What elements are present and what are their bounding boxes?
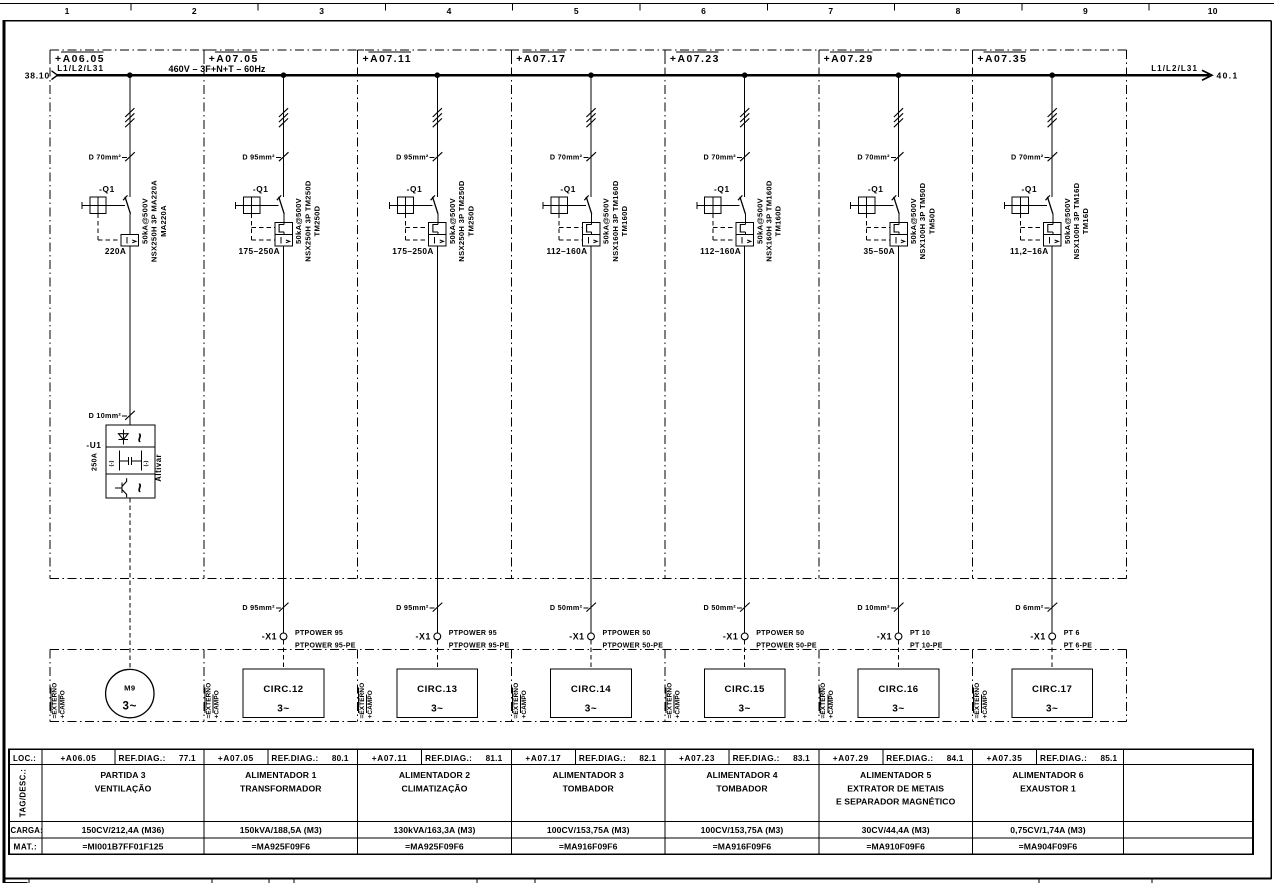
- svg-text:=MI001B7FF01F125: =MI001B7FF01F125: [82, 842, 163, 852]
- svg-text:3~: 3~: [122, 701, 137, 713]
- svg-text:+CAMPO: +CAMPO: [367, 690, 374, 718]
- svg-text:3~: 3~: [277, 704, 289, 715]
- svg-text:-X1: -X1: [416, 632, 432, 642]
- svg-text:+A07.17: +A07.17: [525, 754, 561, 763]
- svg-text:50kA@500V: 50kA@500V: [448, 197, 457, 244]
- svg-text:0,75CV/1,74A (M3): 0,75CV/1,74A (M3): [1010, 825, 1085, 835]
- svg-text:-X1: -X1: [1030, 632, 1046, 642]
- svg-text:82.1: 82.1: [639, 754, 656, 763]
- svg-text:-Q1: -Q1: [99, 184, 115, 194]
- svg-text:REF.DIAG.:: REF.DIAG.:: [579, 754, 626, 763]
- svg-text:=EXTERNO: =EXTERNO: [820, 683, 827, 719]
- svg-text:M9: M9: [124, 683, 135, 692]
- svg-text:+A07.35: +A07.35: [977, 54, 1027, 65]
- svg-text:D 95mm²: D 95mm²: [396, 153, 429, 162]
- svg-text:PTPOWER 50-PE: PTPOWER 50-PE: [603, 643, 664, 650]
- svg-text:D 95mm²: D 95mm²: [396, 603, 429, 612]
- svg-text:=MA916F09F6: =MA916F09F6: [559, 842, 618, 852]
- svg-text:=EXTERNO: =EXTERNO: [359, 683, 366, 719]
- svg-text:-X1: -X1: [262, 632, 278, 642]
- svg-text:3: 3: [319, 6, 324, 16]
- svg-text:PT 6-PE: PT 6-PE: [1064, 643, 1093, 650]
- svg-text:Altivar: Altivar: [154, 454, 163, 482]
- svg-text:D 70mm²: D 70mm²: [704, 153, 737, 162]
- svg-text:3~: 3~: [738, 704, 750, 715]
- svg-text:=MA904F09F6: =MA904F09F6: [1019, 842, 1078, 852]
- svg-text:REF.DIAG.:: REF.DIAG.:: [886, 754, 933, 763]
- svg-text:CIRC.16: CIRC.16: [878, 684, 918, 695]
- svg-text:TOMBADOR: TOMBADOR: [563, 783, 615, 793]
- svg-text:8: 8: [956, 6, 961, 16]
- svg-text:=MA916F09F6: =MA916F09F6: [713, 842, 772, 852]
- svg-text:PARTIDA 3: PARTIDA 3: [100, 770, 145, 780]
- svg-text:D 70mm²: D 70mm²: [89, 153, 122, 162]
- svg-text:-U1: -U1: [86, 440, 101, 450]
- svg-text:TAG/DESC.:: TAG/DESC.:: [19, 769, 28, 817]
- svg-text:PTPOWER 50: PTPOWER 50: [756, 630, 804, 637]
- svg-text:=MA910F09F6: =MA910F09F6: [866, 842, 925, 852]
- svg-text:PTPOWER 95-PE: PTPOWER 95-PE: [449, 643, 510, 650]
- svg-text:REF.DIAG.:: REF.DIAG.:: [119, 754, 166, 763]
- svg-text:+A07.29: +A07.29: [824, 54, 874, 65]
- svg-text:EXTRATOR DE METAIS: EXTRATOR DE METAIS: [847, 783, 944, 793]
- svg-text:VENTILAÇÃO: VENTILAÇÃO: [95, 783, 152, 793]
- svg-text:83.1: 83.1: [793, 754, 810, 763]
- svg-text:3~: 3~: [431, 704, 443, 715]
- svg-text:PTPOWER 95: PTPOWER 95: [295, 630, 343, 637]
- svg-text:EXAUSTOR 1: EXAUSTOR 1: [1020, 783, 1076, 793]
- svg-text:REF.DIAG.:: REF.DIAG.:: [271, 754, 318, 763]
- svg-text:3~: 3~: [585, 704, 597, 715]
- svg-text:TM50D: TM50D: [928, 208, 937, 235]
- svg-text:40.1: 40.1: [1217, 70, 1239, 80]
- svg-text:PTPOWER 50-PE: PTPOWER 50-PE: [756, 643, 817, 650]
- svg-text:NSX160H 3P TM160D: NSX160H 3P TM160D: [765, 180, 774, 262]
- svg-text:=EXTERNO: =EXTERNO: [52, 683, 59, 719]
- svg-text:112–160A: 112–160A: [546, 246, 587, 256]
- svg-text:80.1: 80.1: [332, 754, 349, 763]
- svg-text:150kVA/188,5A (M3): 150kVA/188,5A (M3): [240, 825, 322, 835]
- svg-text:+CAMPO: +CAMPO: [60, 690, 67, 718]
- svg-text:E SEPARADOR MAGNÉTICO: E SEPARADOR MAGNÉTICO: [836, 797, 956, 807]
- svg-text:TM250D: TM250D: [466, 205, 475, 236]
- svg-text:85.1: 85.1: [1101, 754, 1118, 763]
- svg-text:175–250A: 175–250A: [392, 246, 434, 256]
- svg-text:130kVA/163,3A (M3): 130kVA/163,3A (M3): [393, 825, 475, 835]
- svg-text:-X1: -X1: [569, 632, 585, 642]
- svg-text:~: ~: [130, 483, 149, 493]
- svg-text:NSX100H 3P TM16D: NSX100H 3P TM16D: [1072, 182, 1081, 259]
- svg-text:1: 1: [65, 6, 70, 16]
- svg-text:REF.DIAG.:: REF.DIAG.:: [425, 754, 472, 763]
- svg-text:+A07.11: +A07.11: [372, 754, 408, 763]
- svg-text:ALIMENTADOR 6: ALIMENTADOR 6: [1012, 770, 1083, 780]
- svg-text:~: ~: [130, 433, 149, 443]
- svg-text:REF.DIAG.:: REF.DIAG.:: [1040, 754, 1087, 763]
- svg-text:+CAMPO: +CAMPO: [675, 690, 682, 718]
- svg-text:3~: 3~: [892, 704, 904, 715]
- svg-text:NSX160H 3P TM160D: NSX160H 3P TM160D: [611, 180, 620, 262]
- svg-text:50kA@500V: 50kA@500V: [909, 197, 918, 244]
- svg-text:MA220A: MA220A: [159, 205, 168, 237]
- svg-text:TM160D: TM160D: [620, 205, 629, 236]
- svg-text:ALIMENTADOR 5: ALIMENTADOR 5: [860, 770, 931, 780]
- svg-text:ALIMENTADOR 3: ALIMENTADOR 3: [553, 770, 624, 780]
- svg-text:CIRC.12: CIRC.12: [263, 684, 303, 695]
- svg-text:4: 4: [447, 6, 452, 16]
- svg-text:+A07.17: +A07.17: [516, 54, 566, 65]
- svg-text:REF.DIAG.:: REF.DIAG.:: [733, 754, 780, 763]
- svg-text:-X1: -X1: [723, 632, 739, 642]
- svg-text:2: 2: [192, 6, 197, 16]
- svg-text:D 10mm²: D 10mm²: [89, 411, 122, 420]
- svg-text:112–160A: 112–160A: [700, 246, 741, 256]
- svg-text:D 10mm²: D 10mm²: [857, 603, 890, 612]
- svg-text:CARGA:: CARGA:: [11, 826, 43, 835]
- svg-text:PTPOWER 50: PTPOWER 50: [603, 630, 651, 637]
- svg-text:TM250D: TM250D: [313, 205, 322, 236]
- svg-text:+A07.05: +A07.05: [218, 754, 254, 763]
- svg-text:+A07.11: +A07.11: [363, 54, 413, 65]
- svg-text:+CAMPO: +CAMPO: [213, 690, 220, 718]
- svg-text:PT 10-PE: PT 10-PE: [910, 643, 943, 650]
- svg-text:PT 10: PT 10: [910, 630, 930, 637]
- svg-text:(-): (-): [109, 460, 115, 466]
- svg-text:CIRC.15: CIRC.15: [725, 684, 765, 695]
- svg-text:D 95mm²: D 95mm²: [242, 153, 275, 162]
- svg-text:175–250A: 175–250A: [239, 246, 281, 256]
- svg-text:-Q1: -Q1: [560, 184, 576, 194]
- svg-text:+A07.35: +A07.35: [986, 754, 1022, 763]
- svg-text:=EXTERNO: =EXTERNO: [974, 683, 981, 719]
- svg-text:+A07.05: +A07.05: [209, 54, 259, 65]
- svg-text:-Q1: -Q1: [868, 184, 884, 194]
- svg-text:50kA@500V: 50kA@500V: [602, 197, 611, 244]
- svg-text:PTPOWER 95: PTPOWER 95: [449, 630, 497, 637]
- svg-text:50kA@500V: 50kA@500V: [755, 197, 764, 244]
- svg-text:150CV/212,4A (M36): 150CV/212,4A (M36): [82, 825, 165, 835]
- svg-text:-Q1: -Q1: [1022, 184, 1038, 194]
- svg-text:=EXTERNO: =EXTERNO: [205, 683, 212, 719]
- svg-text:L1/L2/L31: L1/L2/L31: [1151, 64, 1198, 73]
- svg-text:=MA925F09F6: =MA925F09F6: [251, 842, 310, 852]
- svg-text:TM16D: TM16D: [1081, 208, 1090, 235]
- svg-text:50kA@500V: 50kA@500V: [140, 197, 149, 244]
- svg-text:ALIMENTADOR 2: ALIMENTADOR 2: [399, 770, 470, 780]
- svg-text:D 6mm²: D 6mm²: [1015, 603, 1043, 612]
- svg-text:PTPOWER 95-PE: PTPOWER 95-PE: [295, 643, 356, 650]
- svg-text:50kA@500V: 50kA@500V: [294, 197, 303, 244]
- svg-text:TM160D: TM160D: [774, 205, 783, 236]
- svg-text:50kA@500V: 50kA@500V: [1063, 197, 1072, 244]
- svg-text:D 50mm²: D 50mm²: [550, 603, 583, 612]
- svg-text:CLIMATIZAÇÃO: CLIMATIZAÇÃO: [402, 783, 468, 793]
- svg-text:NSX250H 3P MA220A: NSX250H 3P MA220A: [150, 180, 159, 262]
- svg-text:7: 7: [828, 6, 833, 16]
- svg-text:6: 6: [701, 6, 706, 16]
- svg-text:9: 9: [1083, 6, 1088, 16]
- svg-text:L1/L2/L31: L1/L2/L31: [57, 64, 104, 73]
- svg-text:CIRC.13: CIRC.13: [417, 684, 457, 695]
- svg-text:+CAMPO: +CAMPO: [521, 690, 528, 718]
- svg-text:-Q1: -Q1: [407, 184, 423, 194]
- svg-text:=MA925F09F6: =MA925F09F6: [405, 842, 464, 852]
- svg-text:NSX250H 3P TM250D: NSX250H 3P TM250D: [303, 180, 312, 262]
- svg-text:+A07.29: +A07.29: [833, 754, 869, 763]
- svg-text:+A07.23: +A07.23: [679, 754, 715, 763]
- svg-text:(-): (-): [143, 460, 149, 466]
- svg-text:35–50A: 35–50A: [864, 246, 895, 256]
- svg-text:11,2–16A: 11,2–16A: [1010, 246, 1049, 256]
- svg-text:+CAMPO: +CAMPO: [828, 690, 835, 718]
- svg-text:TOMBADOR: TOMBADOR: [716, 783, 768, 793]
- svg-text:220A: 220A: [105, 246, 126, 256]
- svg-text:TRANSFORMADOR: TRANSFORMADOR: [240, 783, 322, 793]
- svg-text:=EXTERNO: =EXTERNO: [513, 683, 520, 719]
- svg-text:38.10: 38.10: [25, 71, 50, 81]
- svg-text:+A06.05: +A06.05: [60, 754, 96, 763]
- svg-text:84.1: 84.1: [947, 754, 964, 763]
- svg-text:D 70mm²: D 70mm²: [857, 153, 890, 162]
- svg-text:D 70mm²: D 70mm²: [550, 153, 583, 162]
- svg-text:10: 10: [1208, 6, 1218, 16]
- svg-text:D 95mm²: D 95mm²: [242, 603, 275, 612]
- svg-text:-X1: -X1: [877, 632, 893, 642]
- svg-text:ALIMENTADOR 1: ALIMENTADOR 1: [245, 770, 316, 780]
- svg-text:100CV/153,75A (M3): 100CV/153,75A (M3): [701, 825, 784, 835]
- svg-text:+A07.23: +A07.23: [670, 54, 720, 65]
- svg-text:MAT.:: MAT.:: [14, 843, 38, 852]
- svg-text:460V – 3F+N+T – 60Hz: 460V – 3F+N+T – 60Hz: [168, 64, 265, 74]
- svg-text:-Q1: -Q1: [714, 184, 730, 194]
- svg-text:-Q1: -Q1: [253, 184, 269, 194]
- svg-text:LOC.:: LOC.:: [13, 754, 36, 763]
- svg-text:NSX100H 3P TM50D: NSX100H 3P TM50D: [918, 182, 927, 259]
- svg-text:77.1: 77.1: [179, 754, 196, 763]
- svg-text:250A: 250A: [92, 453, 99, 471]
- svg-text:CIRC.17: CIRC.17: [1032, 684, 1072, 695]
- svg-text:ALIMENTADOR 4: ALIMENTADOR 4: [706, 770, 777, 780]
- svg-text:CIRC.14: CIRC.14: [571, 684, 611, 695]
- svg-text:PT 6: PT 6: [1064, 630, 1080, 637]
- svg-text:+CAMPO: +CAMPO: [982, 690, 989, 718]
- svg-text:5: 5: [574, 6, 579, 16]
- svg-text:3~: 3~: [1046, 704, 1058, 715]
- svg-text:30CV/44,4A (M3): 30CV/44,4A (M3): [862, 825, 930, 835]
- svg-text:100CV/153,75A (M3): 100CV/153,75A (M3): [547, 825, 630, 835]
- svg-text:D 70mm²: D 70mm²: [1011, 153, 1044, 162]
- svg-text:D 50mm²: D 50mm²: [704, 603, 737, 612]
- svg-text:81.1: 81.1: [486, 754, 503, 763]
- svg-text:NSX250H 3P TM250D: NSX250H 3P TM250D: [457, 180, 466, 262]
- svg-text:=EXTERNO: =EXTERNO: [667, 683, 674, 719]
